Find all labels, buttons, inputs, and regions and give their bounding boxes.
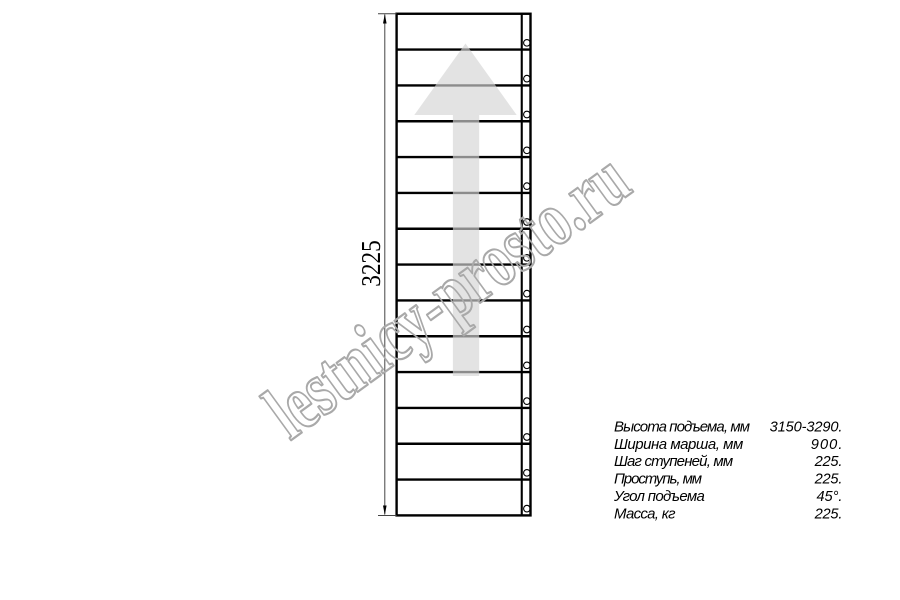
svg-text:225.: 225.: [814, 472, 843, 488]
svg-text:3225: 3225: [356, 240, 386, 287]
svg-text:45°.: 45°.: [817, 489, 843, 505]
svg-text:Шаг ступеней, мм: Шаг ступеней, мм: [614, 453, 733, 470]
svg-text:900.: 900.: [811, 437, 843, 453]
svg-text:3150-3290.: 3150-3290.: [770, 420, 843, 436]
svg-text:Проступь, мм: Проступь, мм: [614, 471, 702, 488]
svg-text:225.: 225.: [814, 454, 843, 470]
svg-text:225.: 225.: [814, 506, 843, 522]
svg-text:Высота подъема, мм: Высота подъема, мм: [614, 419, 750, 436]
svg-text:Масса, кг: Масса, кг: [614, 505, 676, 522]
svg-text:Ширина марша, мм: Ширина марша, мм: [614, 436, 743, 453]
svg-text:Угол подъема: Угол подъема: [613, 488, 705, 505]
